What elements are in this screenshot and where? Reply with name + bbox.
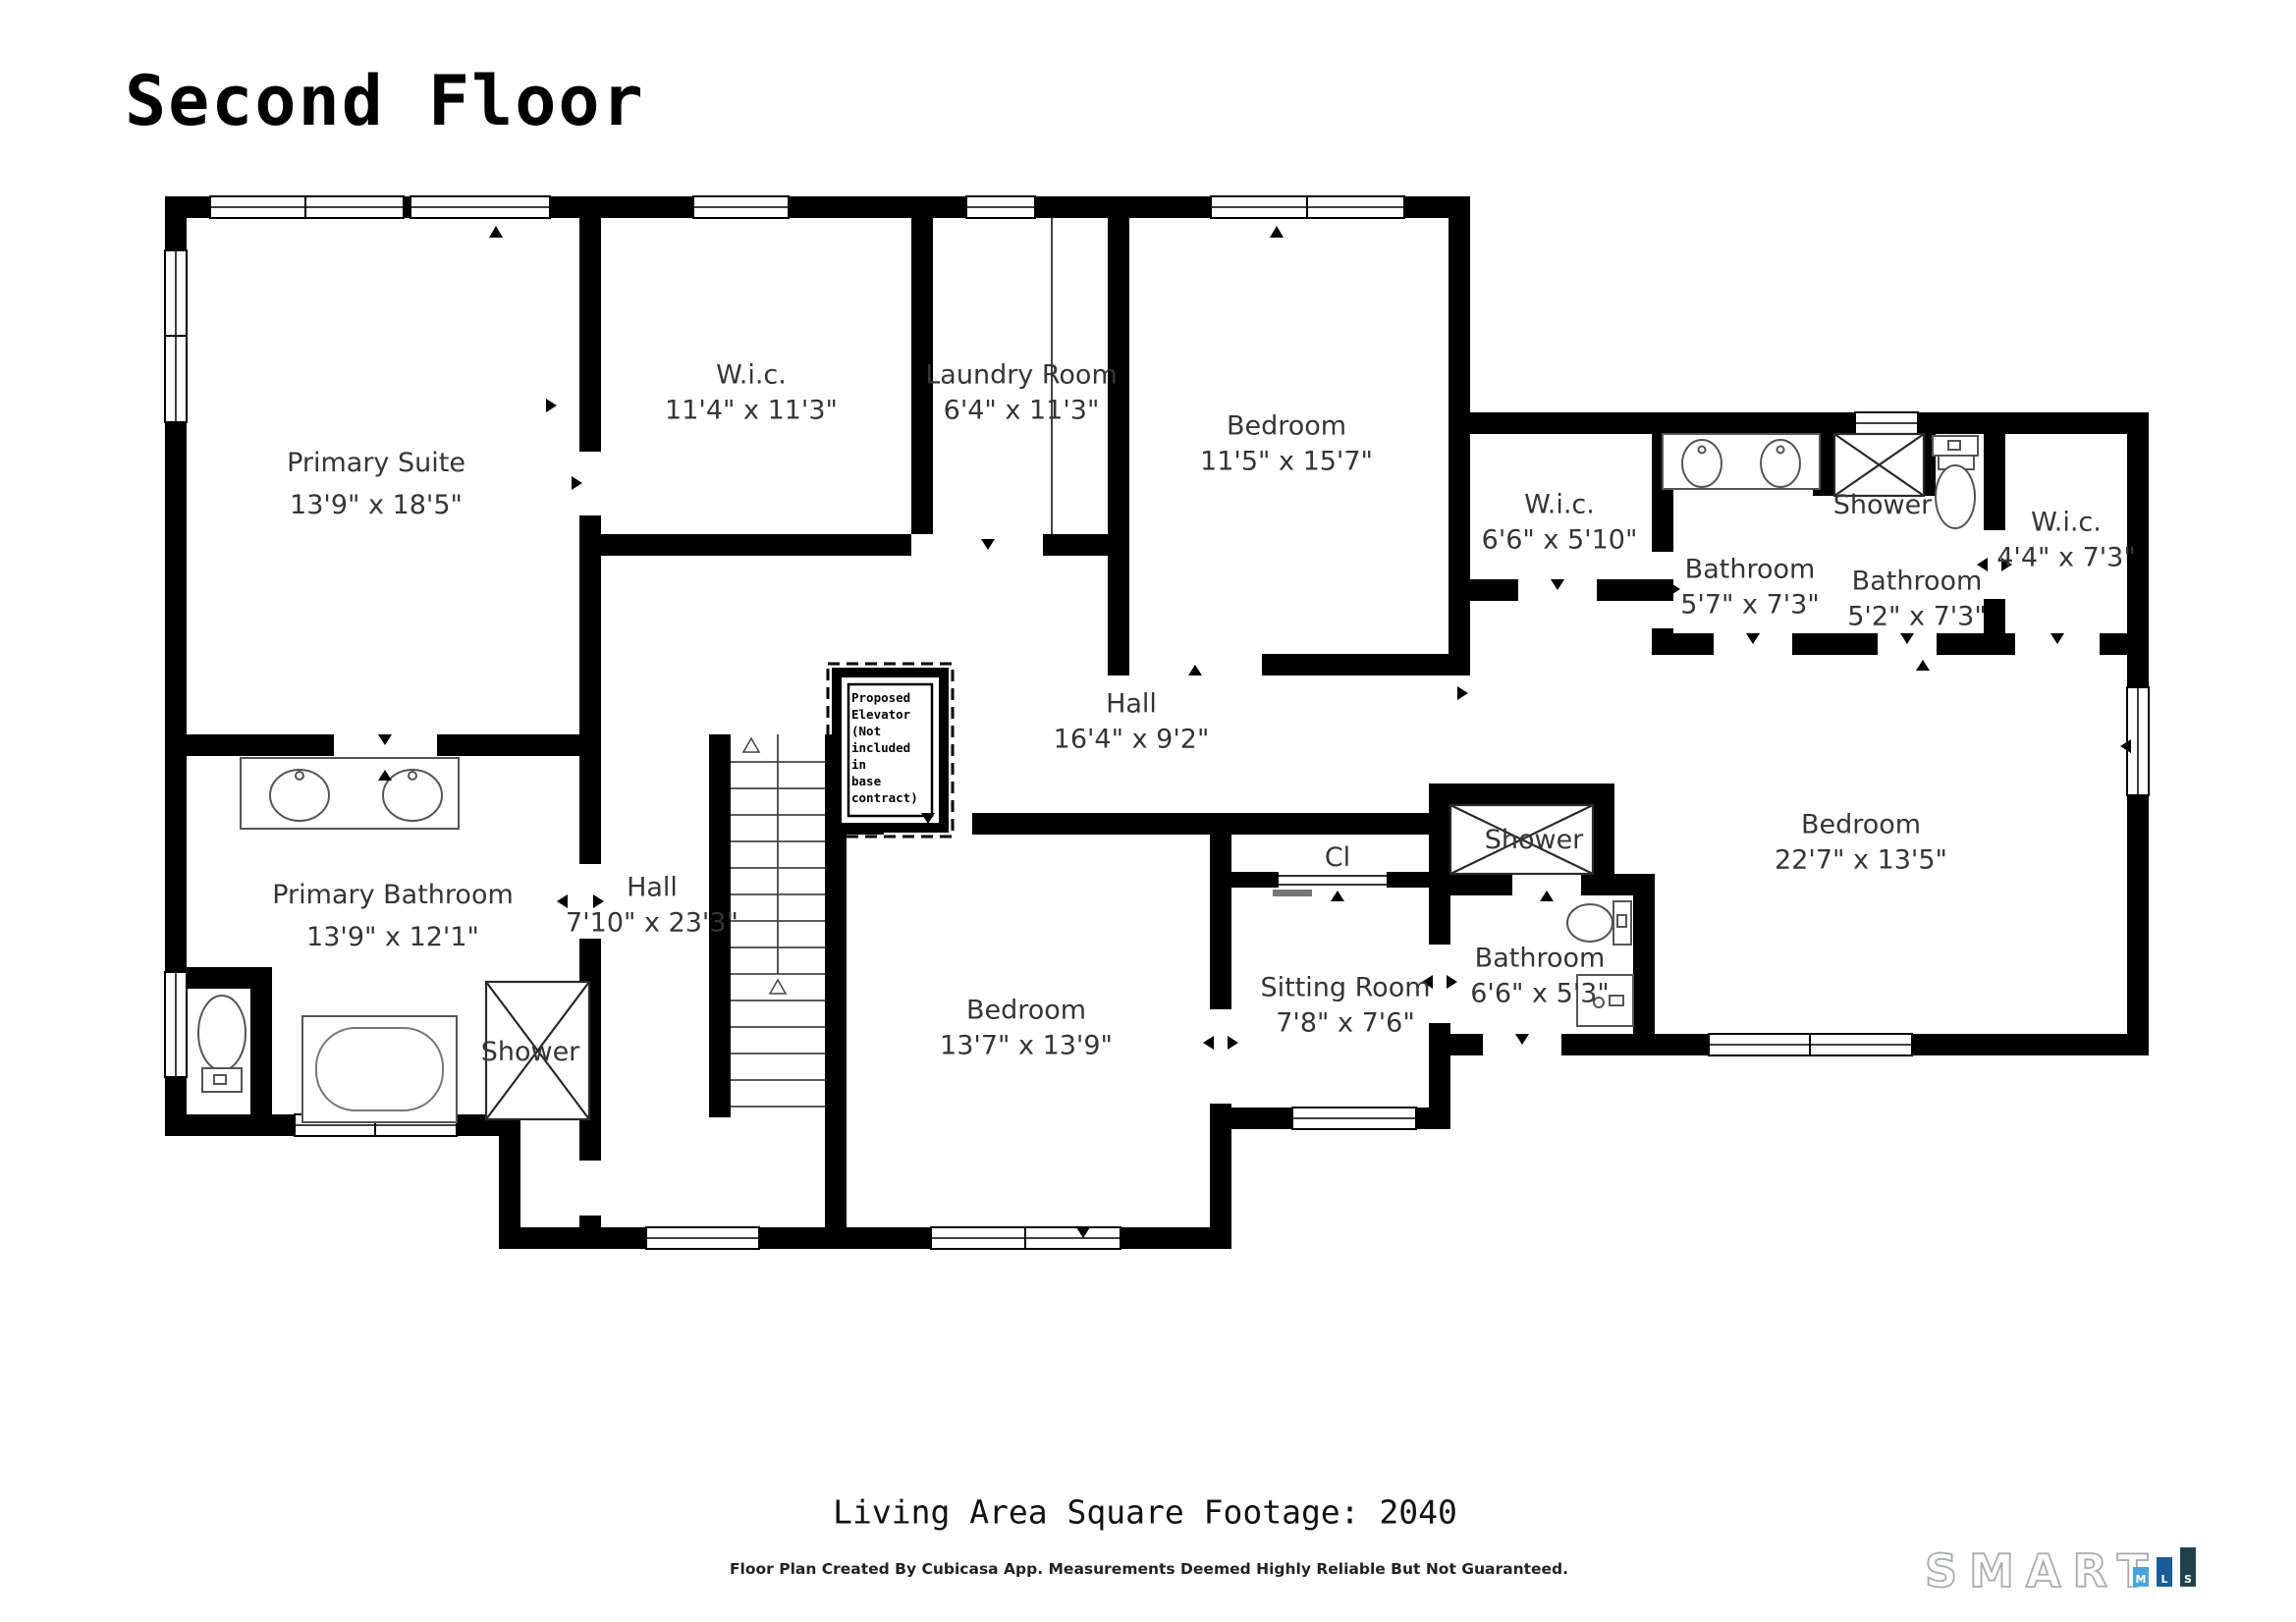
disclaimer-text: Floor Plan Created By Cubicasa App. Meas…: [730, 1560, 1568, 1578]
room-label-primary-bathroom: Primary Bathroom 13'9" x 12'1": [272, 874, 514, 958]
room-label-bathroom-3: Bathroom 6'6" x 5'3": [1470, 941, 1610, 1010]
double-sink-vanity-icon: [241, 758, 459, 829]
room-label-closet: Cl: [1325, 840, 1350, 876]
toilet-icon: [198, 996, 246, 1092]
room-label-laundry-room: Laundry Room 6'4" x 11'3": [925, 357, 1118, 427]
room-label-sitting-room: Sitting Room 7'8" x 7'6": [1260, 970, 1430, 1040]
logo-word: SMART: [1925, 1544, 2159, 1597]
floor-plan-drawing: [0, 0, 2296, 1622]
floor-plan-page: Second Floor: [0, 0, 2296, 1622]
room-label-hall-2: Hall 7'10" x 23'3": [566, 870, 738, 940]
room-label-shower-2: Shower: [1485, 823, 1584, 858]
toilet-icon: [1933, 436, 1978, 528]
room-label-shower-1: Shower: [1833, 488, 1933, 523]
room-label-shower-3: Shower: [481, 1035, 580, 1070]
room-label-bedroom-1: Bedroom 11'5" x 15'7": [1200, 408, 1373, 478]
bathtub-icon: [302, 1016, 457, 1122]
room-label-wic-2: W.i.c. 6'6" x 5'10": [1482, 487, 1638, 557]
door-arrow-icons: [378, 226, 2131, 1238]
logo-letter-l: L: [2160, 1573, 2167, 1586]
toilet-icon: [1567, 901, 1631, 945]
room-label-hall-1: Hall 16'4" x 9'2": [1054, 686, 1210, 756]
closet-door-icon: [1279, 876, 1387, 885]
elevator-note: Proposed Elevator (Not included in base …: [851, 689, 932, 806]
room-label-primary-suite: Primary Suite 13'9" x 18'5": [287, 442, 465, 526]
double-sink-vanity-icon: [1663, 434, 1820, 489]
living-area-footage: Living Area Square Footage: 2040: [833, 1493, 1457, 1532]
logo-letter-s: S: [2184, 1573, 2192, 1586]
logo-letter-m: M: [2136, 1573, 2147, 1586]
stairs-icon: [731, 734, 825, 1107]
closet-rod-icon: [1273, 890, 1312, 896]
room-label-bathroom-1: Bathroom 5'7" x 7'3": [1680, 552, 1820, 622]
room-label-bedroom-2: Bedroom 13'7" x 13'9": [940, 993, 1113, 1062]
room-label-bedroom-3: Bedroom 22'7" x 13'5": [1775, 807, 1947, 877]
room-label-wic-3: W.i.c. 4'4" x 7'3": [1996, 505, 2136, 574]
smartmls-logo: SMART M L S: [1925, 1540, 2249, 1618]
room-label-wic-1: W.i.c. 11'4" x 11'3": [665, 357, 838, 427]
room-label-bathroom-2: Bathroom 5'2" x 7'3": [1847, 564, 1987, 633]
